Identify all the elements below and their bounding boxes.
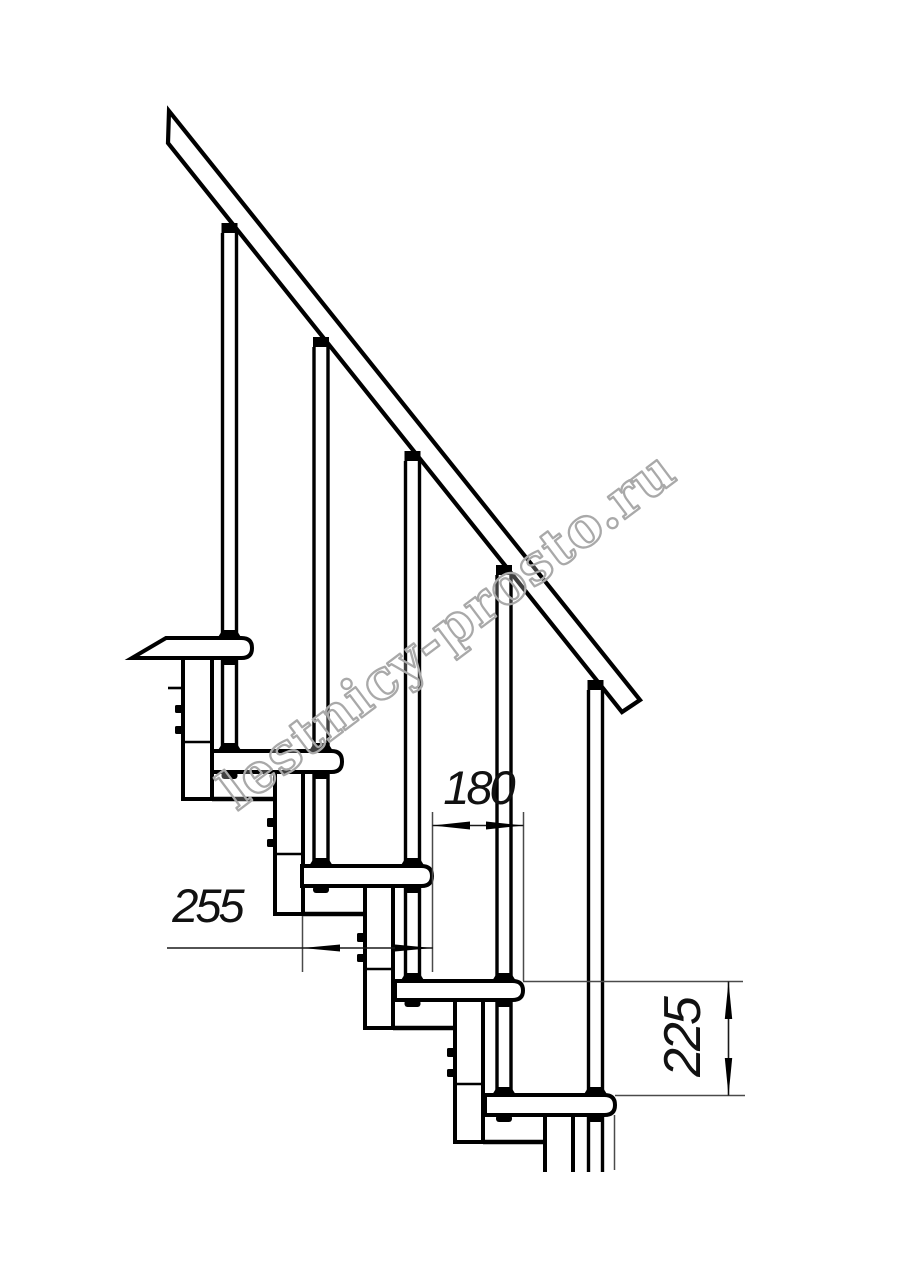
tread-1 <box>132 638 252 658</box>
staircase-drawing: 180 255 225 lestnicy-prosto.ru <box>0 0 914 1280</box>
tread-3 <box>302 866 432 886</box>
dimension-255-label: 255 <box>171 879 245 932</box>
arrow-left-icon <box>303 945 341 952</box>
baluster-2 <box>314 347 328 866</box>
baluster-4 <box>497 575 511 1095</box>
dimension-180-label: 180 <box>443 761 515 814</box>
arrow-up-icon <box>725 982 732 1020</box>
technical-drawing-page: 180 255 225 lestnicy-prosto.ru <box>0 0 914 1280</box>
arrow-left-icon <box>433 822 471 830</box>
baluster-1 <box>223 233 237 752</box>
tread-5 <box>485 1095 615 1115</box>
arrow-right-icon <box>486 822 524 830</box>
dimension-225: 225 <box>654 982 732 1096</box>
arrow-right-icon <box>395 945 433 952</box>
arrow-down-icon <box>725 1058 732 1096</box>
column-5 <box>545 1115 573 1172</box>
baluster-3 <box>406 461 420 981</box>
dimension-225-label: 225 <box>654 995 712 1078</box>
column-3 <box>365 886 393 1028</box>
tread-4 <box>395 981 523 1000</box>
column-4 <box>455 1000 483 1142</box>
column-1 <box>183 657 212 799</box>
